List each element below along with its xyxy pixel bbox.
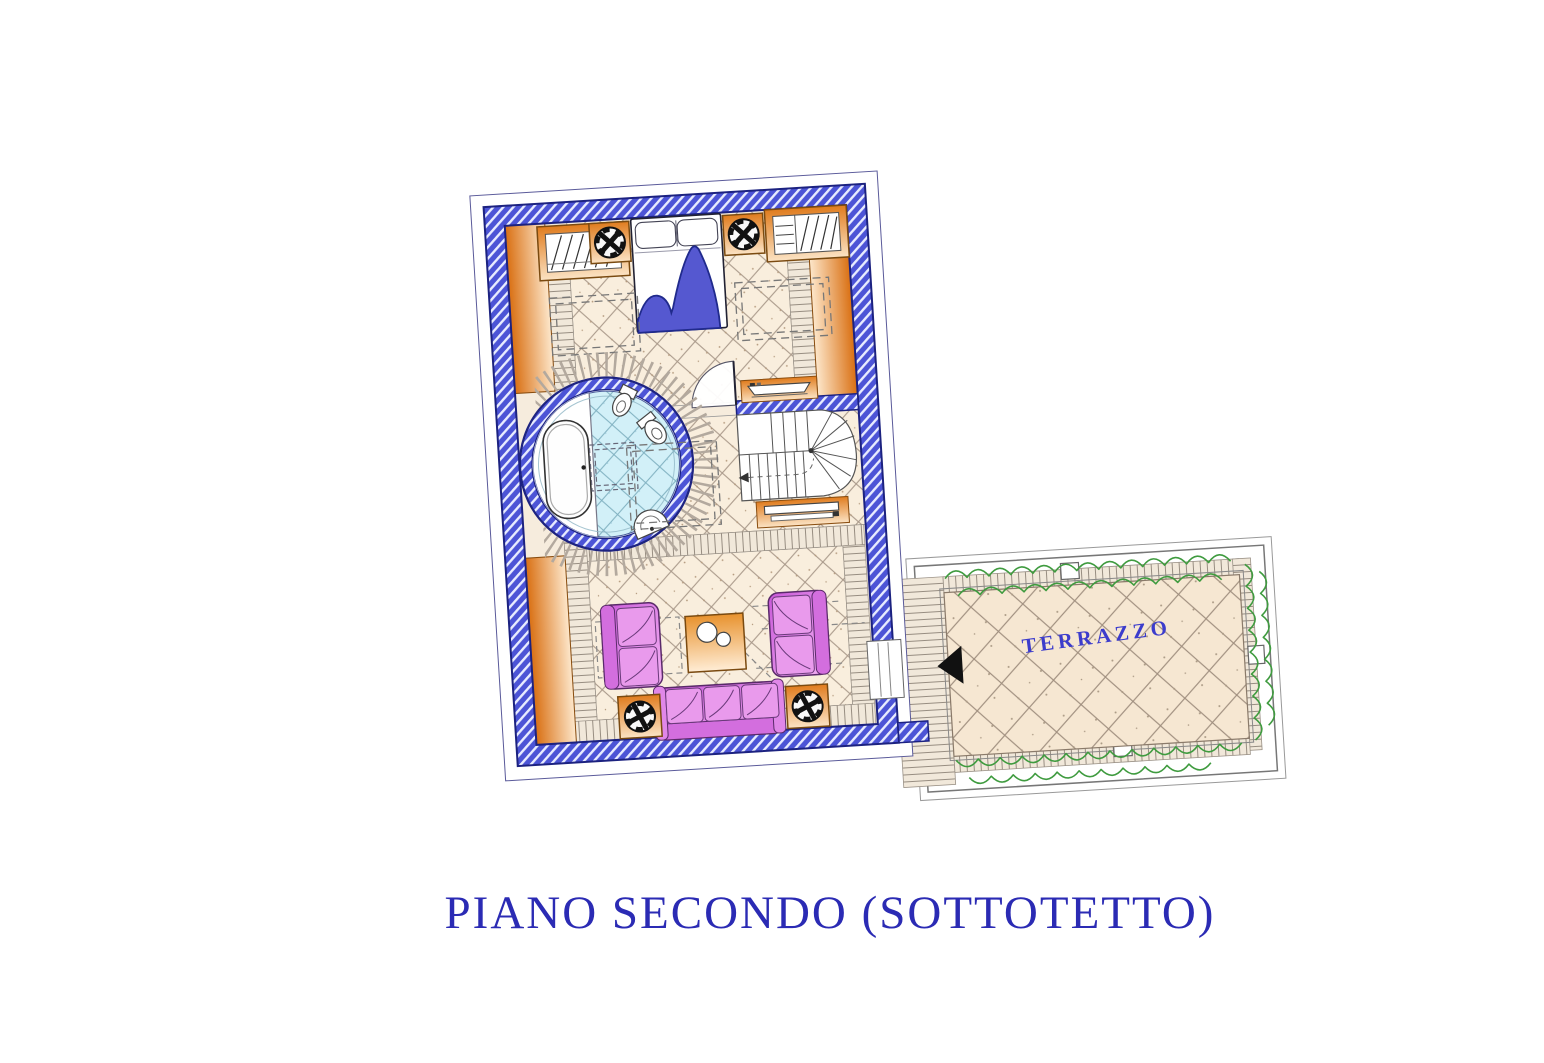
cushion bbox=[616, 606, 656, 646]
loveseat-left bbox=[600, 602, 663, 689]
nightstand-right bbox=[723, 213, 765, 255]
cushion bbox=[772, 595, 812, 635]
radiator-bedroom bbox=[741, 376, 818, 403]
double-bed bbox=[631, 214, 728, 333]
cushion bbox=[774, 635, 814, 675]
sofa-three-seat bbox=[653, 679, 786, 741]
floor-plan-drawing: TERRAZZO bbox=[0, 0, 1544, 1063]
side-table-right bbox=[785, 684, 829, 728]
cushion bbox=[741, 683, 779, 719]
side-table-left bbox=[618, 694, 662, 738]
cushion bbox=[665, 688, 703, 724]
bathtub bbox=[542, 419, 593, 520]
railing-post bbox=[1248, 645, 1265, 664]
coffee-table bbox=[685, 613, 746, 672]
plan-title: PIANO SECONDO (SOTTOTETTO) bbox=[445, 887, 1216, 939]
winder-staircase bbox=[735, 408, 859, 501]
floor-plan: TERRAZZO bbox=[470, 148, 1286, 825]
cushion bbox=[703, 685, 741, 721]
ceiling-fan-icon bbox=[594, 227, 626, 259]
wardrobe-right bbox=[764, 205, 849, 262]
wall-extension bbox=[898, 721, 929, 743]
pillow bbox=[677, 218, 719, 246]
floor-plan-page: TERRAZZO bbox=[0, 0, 1544, 1063]
nightstand-left bbox=[589, 221, 631, 263]
radiator-hall bbox=[756, 496, 849, 528]
loveseat-right bbox=[768, 590, 831, 677]
cushion bbox=[619, 646, 659, 686]
pillow bbox=[635, 220, 677, 248]
terrace-floor bbox=[944, 575, 1249, 757]
ceiling-fan-icon bbox=[728, 218, 760, 250]
